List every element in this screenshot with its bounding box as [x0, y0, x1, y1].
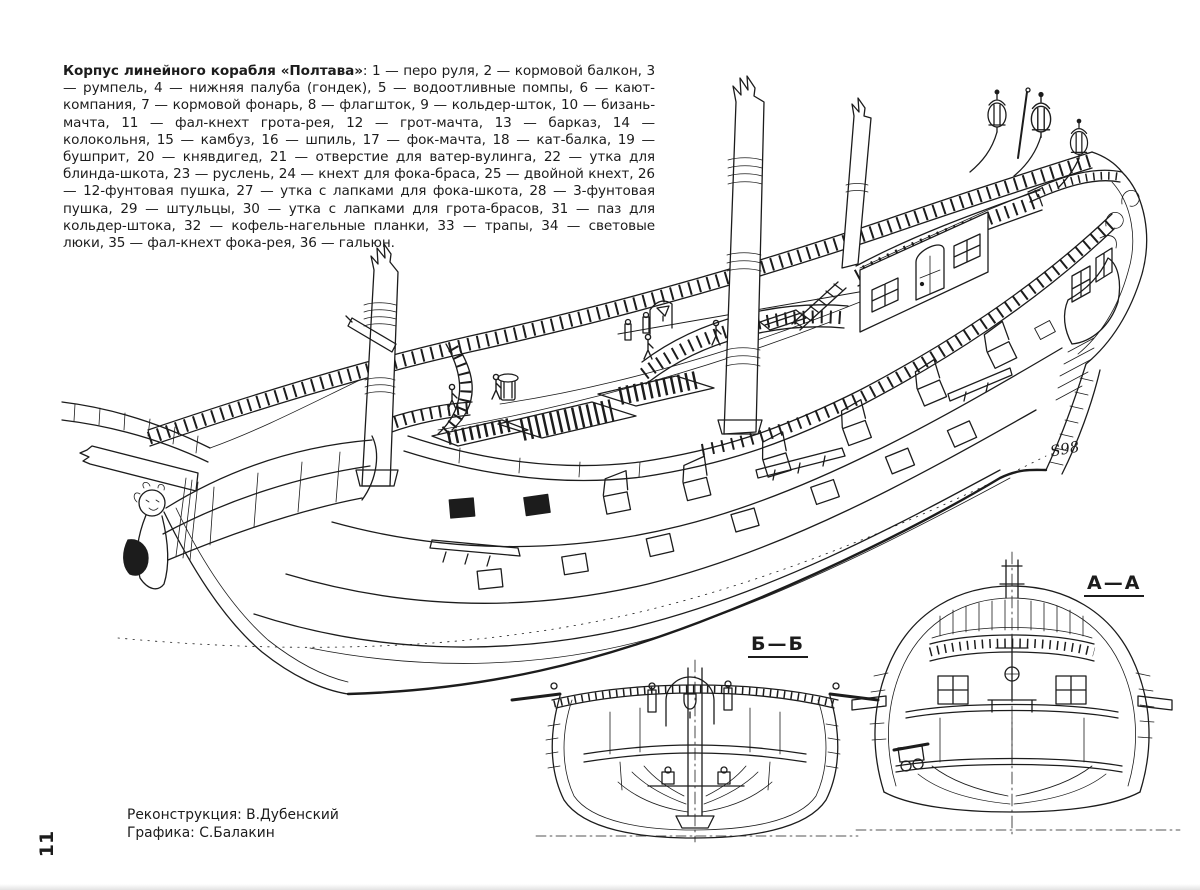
lion-figurehead	[124, 482, 168, 588]
taffrail	[1028, 152, 1122, 202]
credit-reconstruction: Реконструкция: В.Дубенский	[127, 806, 339, 824]
stern-lanterns	[970, 90, 1088, 188]
page-number: 11	[36, 831, 58, 857]
stern-superstructure	[856, 88, 1122, 332]
main-mast-stump	[718, 76, 764, 434]
credits-block: Реконструкция: В.Дубенский Графика: С.Ба…	[127, 806, 339, 842]
caption-title: Корпус линейного корабля «Полтава»	[63, 63, 363, 79]
hull-side	[118, 348, 1062, 694]
section-label-a: А—А	[1084, 572, 1144, 597]
page-edge-shadow	[0, 884, 1200, 890]
caption-legend: : 1 — перо руля, 2 — кормовой балкон, 3 …	[63, 63, 655, 251]
lower-gunports	[477, 421, 976, 589]
figure-caption: Корпус линейного корабля «Полтава»: 1 — …	[63, 63, 655, 252]
cannon	[894, 744, 928, 771]
ship-bell	[666, 677, 714, 726]
quarter-gallery	[1056, 190, 1139, 400]
credit-graphics: Графика: С.Балакин	[127, 824, 339, 842]
book-page: { "caption": { "title_bold": "Корпус лин…	[0, 0, 1200, 890]
stern-transom	[1046, 172, 1147, 474]
section-label-b: Б—Б	[748, 633, 808, 658]
deck-gratings	[432, 376, 714, 446]
section-b-drawing	[512, 660, 878, 842]
fore-mast-stump	[356, 244, 398, 486]
head-rails	[163, 436, 377, 560]
channels	[430, 368, 1012, 566]
